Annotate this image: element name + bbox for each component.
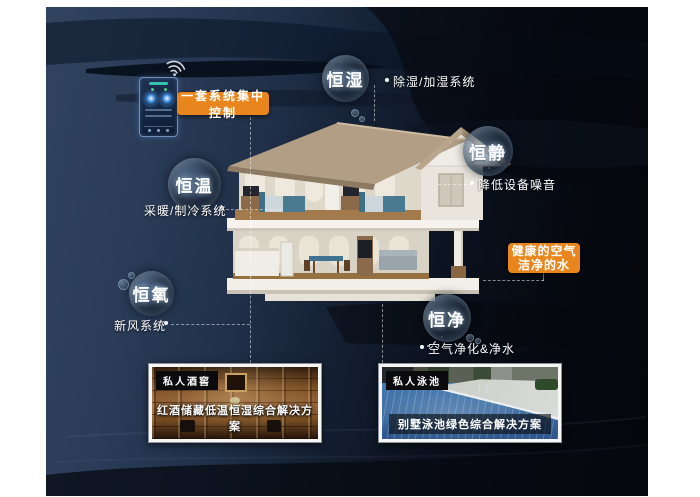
connector-control-wine — [250, 117, 251, 363]
tv-screen — [358, 240, 372, 258]
sofa — [379, 256, 417, 270]
bubble-temp-label: 恒温 — [176, 172, 214, 197]
phone-row — [145, 109, 171, 111]
pool-tag: 私人泳池 — [386, 371, 448, 390]
label-quiet-system: 降低设备噪音 — [478, 176, 556, 193]
control-callout[interactable]: 一套系统集中控制 — [177, 92, 269, 115]
label-temp-system: 采暖/制冷系统 — [144, 202, 226, 219]
pool-photo-card[interactable]: 私人泳池 别墅泳池绿色综合解决方案 — [378, 363, 562, 443]
bubble-humidity-label: 恒湿 — [327, 66, 365, 91]
highlight-line2: 洁净的水 — [518, 258, 570, 272]
kitchen-cabinets — [235, 248, 279, 276]
phone-row — [145, 115, 171, 117]
phone-status-dots — [151, 88, 167, 91]
house-base-slab — [227, 278, 479, 292]
connector-quiet-house — [438, 184, 472, 185]
phone-title-bar — [149, 82, 169, 85]
control-panel-phone[interactable] — [139, 77, 178, 137]
control-callout-label: 一套系统集中控制 — [177, 87, 269, 121]
decor-bubble — [359, 116, 365, 122]
dining-table — [309, 256, 343, 261]
label-purity-system: 空气净化&净水 — [428, 340, 515, 357]
phone-knob — [161, 93, 173, 105]
dark-canvas: 一套系统集中控制 健康的空气 洁净的水 恒湿 恒静 恒温 恒氧 恒净 除湿/加湿… — [46, 7, 648, 496]
pool-caption: 别墅泳池绿色综合解决方案 — [389, 414, 551, 434]
wine-photo-card[interactable]: 私人酒窖 红酒储藏低温恒湿综合解决方案 — [148, 363, 322, 443]
connector-temp-house — [226, 209, 282, 210]
bubble-quiet[interactable]: 恒静 — [463, 126, 513, 176]
wine-tag: 私人酒窖 — [156, 371, 218, 390]
infographic-page: { "control_panel": { "label": "一套系统集中控制"… — [0, 0, 700, 497]
bubble-purity[interactable]: 恒净 — [423, 294, 471, 342]
bubble-humidity[interactable]: 恒湿 — [322, 55, 369, 102]
decor-bubble — [118, 279, 129, 290]
pool-hedge — [535, 379, 558, 390]
fridge — [281, 242, 293, 276]
label-humidity-system: 除湿/加湿系统 — [393, 73, 475, 90]
bubble-oxygen[interactable]: 恒氧 — [129, 271, 174, 316]
bedroom-tv — [243, 186, 259, 196]
bubble-oxygen-label: 恒氧 — [133, 281, 171, 306]
phone-nav-bar — [144, 126, 172, 133]
phone-knobs — [145, 93, 173, 105]
bubble-quiet-label: 恒静 — [469, 139, 507, 164]
connector-highlight-h — [483, 280, 544, 281]
bubble-purity-label: 恒净 — [428, 306, 466, 331]
connector-oxygen-house — [171, 324, 250, 325]
bullet-quiet — [470, 181, 474, 185]
connector-humidity-roof — [374, 85, 375, 121]
phone-knob — [145, 93, 157, 105]
pool-ladder — [479, 384, 487, 393]
connector-house-pool — [382, 304, 383, 363]
decor-bubble — [351, 109, 359, 117]
wifi-icon — [161, 56, 187, 78]
highlight-callout[interactable]: 健康的空气 洁净的水 — [508, 243, 580, 273]
bullet-humidity — [385, 78, 389, 82]
wine-caption: 红酒储藏低温恒湿综合解决方案 — [152, 402, 318, 434]
label-oxygen-system: 新风系统 — [114, 317, 166, 334]
highlight-line1: 健康的空气 — [511, 244, 576, 258]
wine-art-frame — [225, 373, 247, 392]
bullet-purity — [420, 345, 424, 349]
